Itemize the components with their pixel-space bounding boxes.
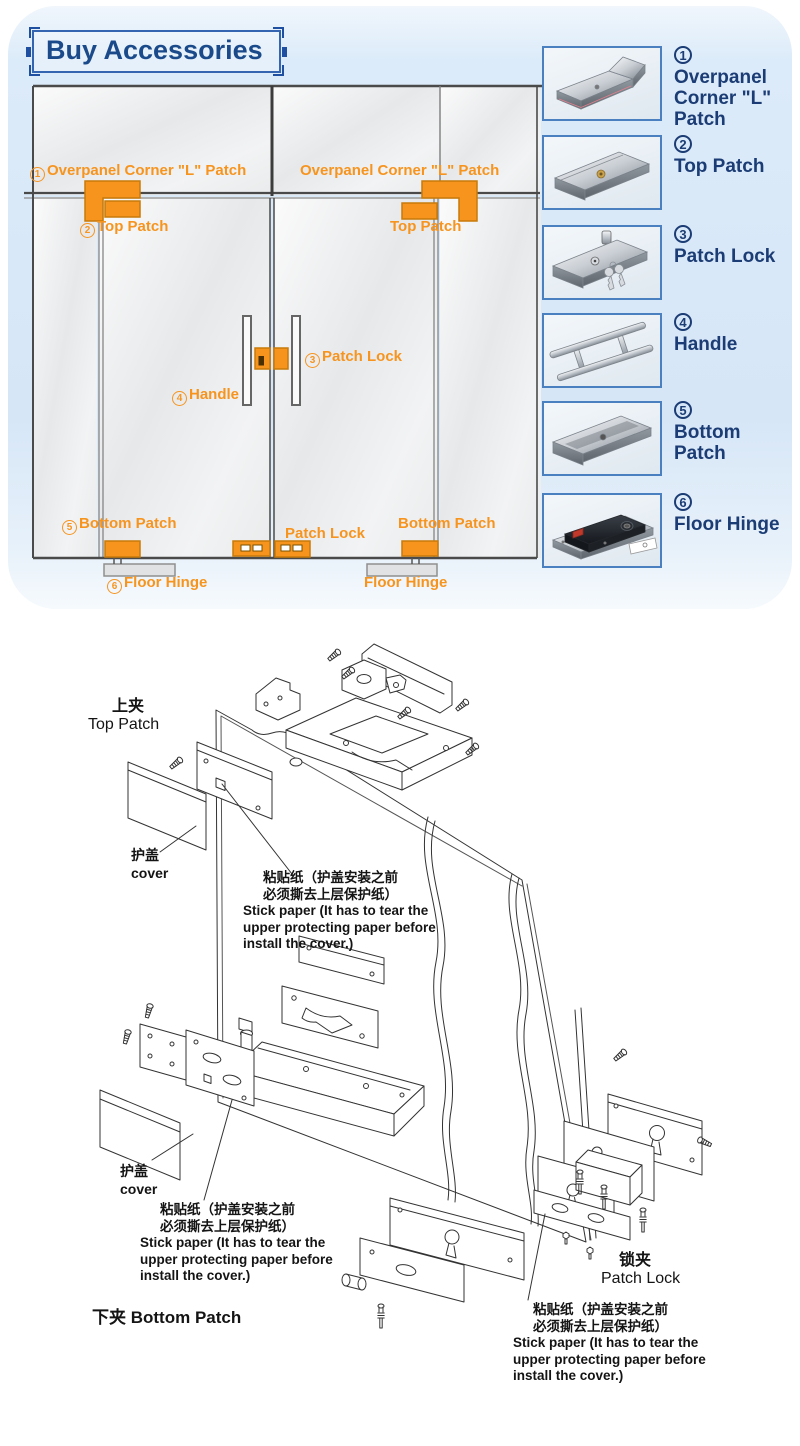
- accessory-label-3: 3 Patch Lock: [674, 225, 796, 300]
- accessory-row-6: 6 Floor Hinge: [542, 493, 796, 568]
- label-floor-hinge-right: Floor Hinge: [364, 574, 447, 591]
- title-edge-tab: [282, 47, 287, 57]
- door-handles: [243, 316, 300, 405]
- label-patch-lock-bottom: Patch Lock: [285, 525, 365, 542]
- label-overpanel-right: Overpanel Corner "L" Patch: [300, 162, 499, 179]
- mid-patch-lock-right: [274, 348, 288, 369]
- label-handle: 4Handle: [172, 386, 239, 406]
- title-corner-mark: [29, 27, 40, 38]
- circled-number: 3: [305, 353, 320, 368]
- label-bottom-patch-left: 5Bottom Patch: [62, 515, 177, 535]
- glass-panels: [33, 86, 541, 558]
- top-patch-left: [105, 201, 140, 217]
- title-corner-mark: [29, 65, 40, 76]
- accessory-label-5: 5 Bottom Patch: [674, 401, 796, 476]
- label-top-patch: 上夹 Top Patch: [88, 692, 159, 734]
- accessory-photo-patch-lock: [542, 225, 662, 300]
- accessory-label-6: 6 Floor Hinge: [674, 493, 796, 568]
- accessory-label-1: 1 Overpanel Corner "L" Patch: [674, 46, 796, 130]
- buy-accessories-panel: Buy Accessories: [8, 6, 792, 609]
- page: { "panel": { "title": "Buy Accessories" …: [0, 0, 800, 1446]
- label-stick-paper-top: 粘贴纸（护盖安装之前 必须撕去上层保护纸） Stick paper (It ha…: [243, 870, 436, 953]
- title-corner-mark: [273, 65, 284, 76]
- lower-center-plates: [342, 1198, 524, 1328]
- circled-number: 1: [674, 46, 692, 64]
- label-top-patch-right: Top Patch: [390, 218, 461, 235]
- label-stick-paper-lock: 粘贴纸（护盖安装之前 必须撕去上层保护纸） Stick paper (It ha…: [513, 1302, 706, 1385]
- label-cover-top: 护盖 cover: [131, 845, 168, 881]
- title-corner-mark: [273, 27, 284, 38]
- label-stick-paper-bottom: 粘贴纸（护盖安装之前 必须撕去上层保护纸） Stick paper (It ha…: [140, 1202, 333, 1285]
- accessory-name: Patch Lock: [674, 246, 775, 267]
- handle-image: [545, 316, 659, 385]
- label-patch-lock-mid: 3Patch Lock: [305, 348, 402, 368]
- corner-l-patch-image: [545, 49, 659, 118]
- label-top-patch-left: 2Top Patch: [80, 218, 168, 238]
- label-cover-bottom: 护盖 cover: [120, 1161, 157, 1197]
- circled-number: 2: [80, 223, 95, 238]
- section-title-text: Buy Accessories: [46, 35, 263, 65]
- accessory-row-5: 5 Bottom Patch: [542, 401, 796, 476]
- bottom-patch-left: [105, 541, 140, 557]
- label-overpanel-left: 1Overpanel Corner "L" Patch: [30, 162, 246, 182]
- accessory-row-1: 1 Overpanel Corner "L" Patch: [542, 46, 796, 130]
- circled-number: 4: [674, 313, 692, 331]
- accessory-photo-corner-l-patch: [542, 46, 662, 121]
- accessory-name: Overpanel Corner "L" Patch: [674, 67, 771, 130]
- label-floor-hinge-left: 6Floor Hinge: [107, 574, 207, 594]
- accessory-label-4: 4 Handle: [674, 313, 796, 388]
- circled-number: 4: [172, 391, 187, 406]
- circled-number: 6: [107, 579, 122, 594]
- circled-number: 2: [674, 135, 692, 153]
- section-title: Buy Accessories: [32, 30, 281, 73]
- accessory-row-2: 2 Top Patch: [542, 135, 796, 210]
- circled-number: 5: [62, 520, 77, 535]
- accessory-photo-handle: [542, 313, 662, 388]
- top-patch-right: [402, 203, 437, 219]
- bottom-patch-right: [402, 541, 438, 556]
- top-patch-image: [545, 138, 659, 207]
- bottom-patch-image: [545, 404, 659, 473]
- accessory-name: Handle: [674, 334, 737, 355]
- label-bottom-patch: 下夹 Bottom Patch: [92, 1303, 241, 1328]
- accessory-photo-floor-hinge: [542, 493, 662, 568]
- circled-number: 3: [674, 225, 692, 243]
- label-bottom-patch-right: Bottom Patch: [398, 515, 496, 532]
- circled-number: 1: [30, 167, 45, 182]
- floor-hinge-image: [545, 496, 659, 565]
- title-edge-tab: [26, 47, 31, 57]
- accessory-label-2: 2 Top Patch: [674, 135, 796, 210]
- bottom-lock-left: [233, 541, 270, 556]
- accessory-photo-bottom-patch: [542, 401, 662, 476]
- accessory-photo-top-patch: [542, 135, 662, 210]
- accessory-row-4: 4 Handle: [542, 313, 796, 388]
- accessory-row-3: 3 Patch Lock: [542, 225, 796, 300]
- label-patch-lock: 锁夹 Patch Lock: [601, 1246, 680, 1288]
- circled-number: 6: [674, 493, 692, 511]
- installation-exploded-diagram: 上夹 Top Patch 护盖 cover 粘贴纸（护盖安装之前 必须撕去上层保…: [0, 612, 800, 1446]
- accessory-name: Top Patch: [674, 156, 764, 177]
- patch-lock-image: [545, 228, 659, 297]
- accessory-name: Floor Hinge: [674, 514, 780, 535]
- circled-number: 5: [674, 401, 692, 419]
- accessory-name: Bottom Patch: [674, 422, 740, 464]
